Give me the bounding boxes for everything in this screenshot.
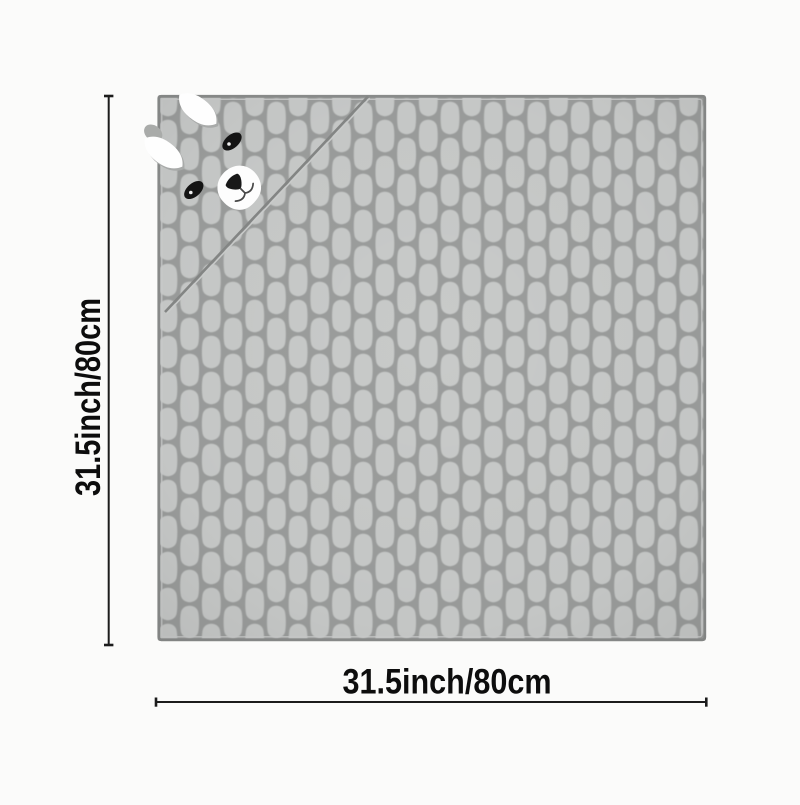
svg-text:31.5inch/80cm: 31.5inch/80cm	[343, 662, 552, 702]
svg-text:31.5inch/80cm: 31.5inch/80cm	[69, 298, 108, 496]
